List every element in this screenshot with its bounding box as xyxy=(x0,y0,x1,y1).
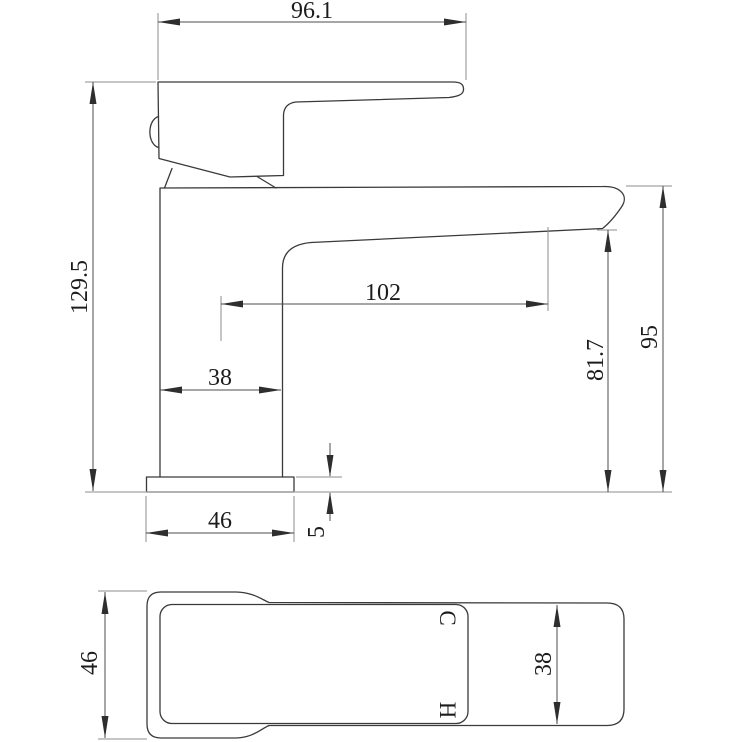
dimension-outlet-height: 81.7 xyxy=(583,230,617,492)
arrow-up-icon xyxy=(102,592,109,614)
dimension-body-depth: 38 xyxy=(531,605,561,724)
arrow-right-icon xyxy=(526,301,548,308)
cold-indicator-label: C xyxy=(435,610,460,625)
technical-drawing: 96.1 129.5 102 xyxy=(0,0,742,742)
arrow-down-icon xyxy=(327,455,334,477)
arrow-down-icon xyxy=(102,716,109,738)
dimension-height-left: 129.5 xyxy=(67,82,156,491)
arrow-left-icon xyxy=(221,301,243,308)
arrow-down-icon xyxy=(90,469,97,491)
arrow-up-icon xyxy=(605,230,612,252)
arrow-up-icon xyxy=(90,82,97,104)
dimension-base-thickness: 5 xyxy=(296,443,342,538)
base-plate xyxy=(147,477,295,492)
arrow-left-icon xyxy=(160,387,182,394)
dim-spout-reach-label: 102 xyxy=(365,280,401,306)
arrow-left-icon xyxy=(158,19,180,26)
cartridge-dome-right-edge xyxy=(257,177,276,189)
dimension-spout-reach: 102 xyxy=(221,227,548,341)
arrow-right-icon xyxy=(444,19,466,26)
dim-height-left-label: 129.5 xyxy=(67,260,93,314)
dimension-base-width: 46 xyxy=(146,496,294,542)
handle-lever-outline xyxy=(158,82,464,177)
dim-base-thickness-label: 5 xyxy=(304,526,330,538)
dim-base-depth-label: 46 xyxy=(77,651,103,675)
arrow-down-icon xyxy=(605,470,612,492)
dim-width-top-label: 96.1 xyxy=(291,0,333,24)
arrow-right-icon xyxy=(272,530,294,537)
arrow-up-icon xyxy=(554,605,561,627)
arrow-down-icon xyxy=(660,470,667,492)
dim-spout-height-label: 95 xyxy=(637,325,663,349)
drawing-sheet: 96.1 129.5 102 xyxy=(0,0,742,742)
arrow-left-icon xyxy=(146,530,168,537)
dim-base-width-label: 46 xyxy=(208,508,232,534)
bottom-view: C H 46 38 xyxy=(77,591,624,739)
dim-outlet-height-label: 81.7 xyxy=(583,339,609,381)
side-view: 96.1 129.5 102 xyxy=(67,0,672,542)
dimension-body-width: 38 xyxy=(160,365,281,394)
arrow-up-icon xyxy=(660,186,667,208)
dim-body-width-label: 38 xyxy=(208,365,232,391)
dimension-base-depth: 46 xyxy=(77,591,147,739)
footprint-inner-outline xyxy=(160,605,468,724)
arrow-right-icon xyxy=(259,387,281,394)
dim-body-depth-label: 38 xyxy=(531,652,557,676)
hot-indicator-label: H xyxy=(435,702,460,719)
handle-side-cap xyxy=(150,117,159,148)
arrow-up-icon xyxy=(327,492,334,514)
dimension-spout-height: 95 xyxy=(626,186,672,492)
cartridge-dome-left-edge xyxy=(165,169,173,189)
arrow-down-icon xyxy=(554,702,561,724)
dimension-width-top: 96.1 xyxy=(158,0,466,80)
body-spout-outline xyxy=(160,186,624,477)
